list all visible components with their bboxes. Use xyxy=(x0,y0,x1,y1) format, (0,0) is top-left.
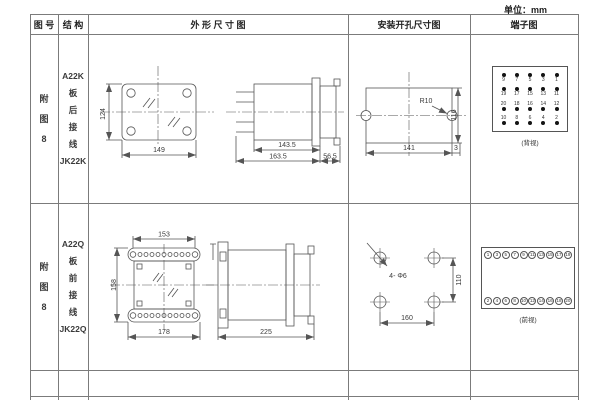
figure-no-cell-r2: 附 图 8 xyxy=(30,203,58,370)
table-grid-line xyxy=(30,34,578,35)
terminal-dot xyxy=(541,107,545,111)
table-grid-line xyxy=(30,14,578,15)
terminal-dot xyxy=(555,121,559,125)
terminal-circle: 1 xyxy=(484,251,492,259)
terminal-row: 19 17 15 13 11 xyxy=(498,87,562,97)
table-grid-line xyxy=(30,370,578,371)
terminal-row: 9 7 5 3 1 xyxy=(498,73,562,83)
dim-label-mounting-offset-r1: 3 xyxy=(454,145,458,152)
header-structure: 结 构 xyxy=(58,18,88,31)
table-grid-line xyxy=(470,14,471,400)
header-mounting: 安装开孔尺寸图 xyxy=(348,18,470,31)
terminal-box-r1: 9 7 5 3 1 19 17 15 13 11 20 18 16 14 12 xyxy=(492,66,568,132)
header-outline: 外 形 尺 寸 图 xyxy=(88,18,348,31)
table-grid-line xyxy=(578,14,579,400)
terminal-circle: 11 xyxy=(528,251,536,259)
dim-label-front-width-r1: 149 xyxy=(153,147,165,154)
dim-label-side-len3-r1: 56.5 xyxy=(323,154,337,161)
mounting-holes-r2-drawing: 4- Φ6 110 160 xyxy=(358,234,464,336)
terminal-circle: 6 xyxy=(502,297,510,305)
terminal-circle: 3 xyxy=(493,251,501,259)
terminal-dot xyxy=(502,121,506,125)
structure-cell-r1: A22K 板 后 接 线 JK22K xyxy=(58,34,88,203)
terminal-dot xyxy=(555,107,559,111)
header-figure-no: 图 号 xyxy=(30,18,58,31)
terminal-circle: 20 xyxy=(564,297,572,305)
dim-label-mounting-width-r1: 141 xyxy=(403,145,415,152)
terminal-circle: 18 xyxy=(555,297,563,305)
outline-side-view-r1-drawing: 143.5 163.5 56.5 xyxy=(224,60,346,172)
terminal-circle: 16 xyxy=(546,297,554,305)
dim-label-front-top-width-r2: 153 xyxy=(158,232,170,239)
table-grid-line xyxy=(88,14,89,400)
terminal-circle: 10 xyxy=(520,297,528,305)
terminal-box-r2: 1 3 5 7 9 11 13 15 17 19 2 4 6 8 10 12 1… xyxy=(481,247,575,309)
terminal-row: 1 3 5 7 9 11 13 15 17 19 xyxy=(484,251,572,259)
terminal-dot xyxy=(502,107,506,111)
terminal-view-label-r1: (背视) xyxy=(486,137,574,147)
terminal-dot xyxy=(515,107,519,111)
figure-no-cell-r1: 附 图 8 xyxy=(30,34,58,203)
outline-front-view-r1-drawing: 124 149 xyxy=(98,62,216,170)
dim-label-side-length-r2: 225 xyxy=(260,329,272,336)
terminal-row: 10 8 6 4 2 xyxy=(498,115,562,125)
dim-label-mounting-height-r2: 110 xyxy=(456,274,463,285)
terminal-circle: 4 xyxy=(493,297,501,305)
table-grid-line xyxy=(30,396,578,397)
terminal-circle: 19 xyxy=(564,251,572,259)
terminal-circle: 12 xyxy=(528,297,536,305)
dim-label-mounting-height-r1: 116 xyxy=(451,109,458,120)
terminal-circle: 13 xyxy=(537,251,545,259)
dim-label-front-height-r1: 124 xyxy=(100,108,107,120)
dim-label-mounting-width-r2: 160 xyxy=(401,315,413,322)
outline-side-view-r2-drawing: 225 xyxy=(202,230,322,344)
terminal-dot xyxy=(528,121,532,125)
table-grid-line xyxy=(348,14,349,400)
terminal-diagram-r2: 1 3 5 7 9 11 13 15 17 19 2 4 6 8 10 12 1… xyxy=(479,247,577,324)
terminal-circle: 15 xyxy=(546,251,554,259)
terminal-row: 20 18 16 14 12 xyxy=(498,101,562,111)
mounting-cutout-r1-drawing: R10 141 3 116 xyxy=(354,62,468,162)
table-grid-line xyxy=(30,203,578,204)
document-page: 单位：mm 图 号 结 构 外 形 尺 寸 图 安装开孔尺寸图 端子图 附 图 … xyxy=(0,0,600,400)
structure-cell-r2: A22Q 板 前 接 线 JK22Q xyxy=(58,203,88,370)
terminal-dot xyxy=(515,121,519,125)
terminal-circle: 7 xyxy=(511,251,519,259)
terminal-dot xyxy=(528,107,532,111)
terminal-diagram-r1: 9 7 5 3 1 19 17 15 13 11 20 18 16 14 12 xyxy=(486,66,574,147)
terminal-view-label-r2: (前视) xyxy=(479,314,577,324)
terminal-row: 2 4 6 8 10 12 14 16 18 20 xyxy=(484,297,572,305)
terminal-circle: 5 xyxy=(502,251,510,259)
terminal-dot xyxy=(541,121,545,125)
terminal-circle: 8 xyxy=(511,297,519,305)
terminal-circle: 14 xyxy=(537,297,545,305)
dim-label-side-len2-r1: 163.5 xyxy=(269,154,287,161)
dim-label-front-bottom-width-r2: 178 xyxy=(158,329,170,336)
dim-label-radius-r1: R10 xyxy=(420,98,433,105)
terminal-circle: 2 xyxy=(484,297,492,305)
header-terminal: 端子图 xyxy=(470,18,578,31)
terminal-circle: 9 xyxy=(520,251,528,259)
terminal-circle: 17 xyxy=(555,251,563,259)
dim-label-front-height-r2: 158 xyxy=(111,279,118,291)
dim-label-side-len1-r1: 143.5 xyxy=(278,142,296,149)
dim-label-hole-spec-r2: 4- Φ6 xyxy=(389,273,407,280)
